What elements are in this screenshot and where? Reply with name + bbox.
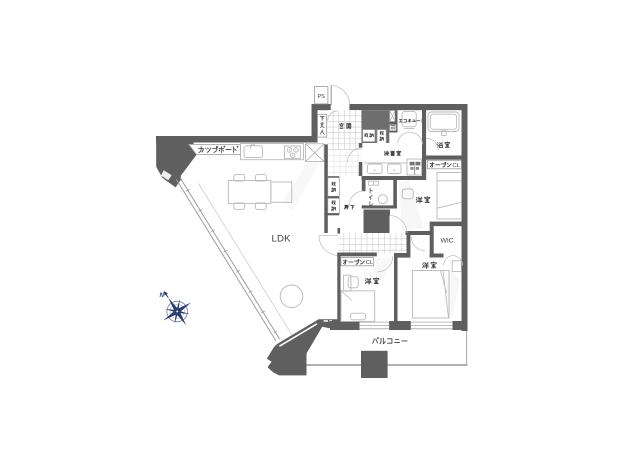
svg-text:PS: PS [317,94,325,100]
svg-text:CL: CL [453,163,461,169]
svg-text:LDK: LDK [272,234,292,245]
svg-text:N: N [160,292,165,299]
svg-text:CL: CL [366,260,374,266]
svg-text:WIC: WIC [441,238,454,245]
